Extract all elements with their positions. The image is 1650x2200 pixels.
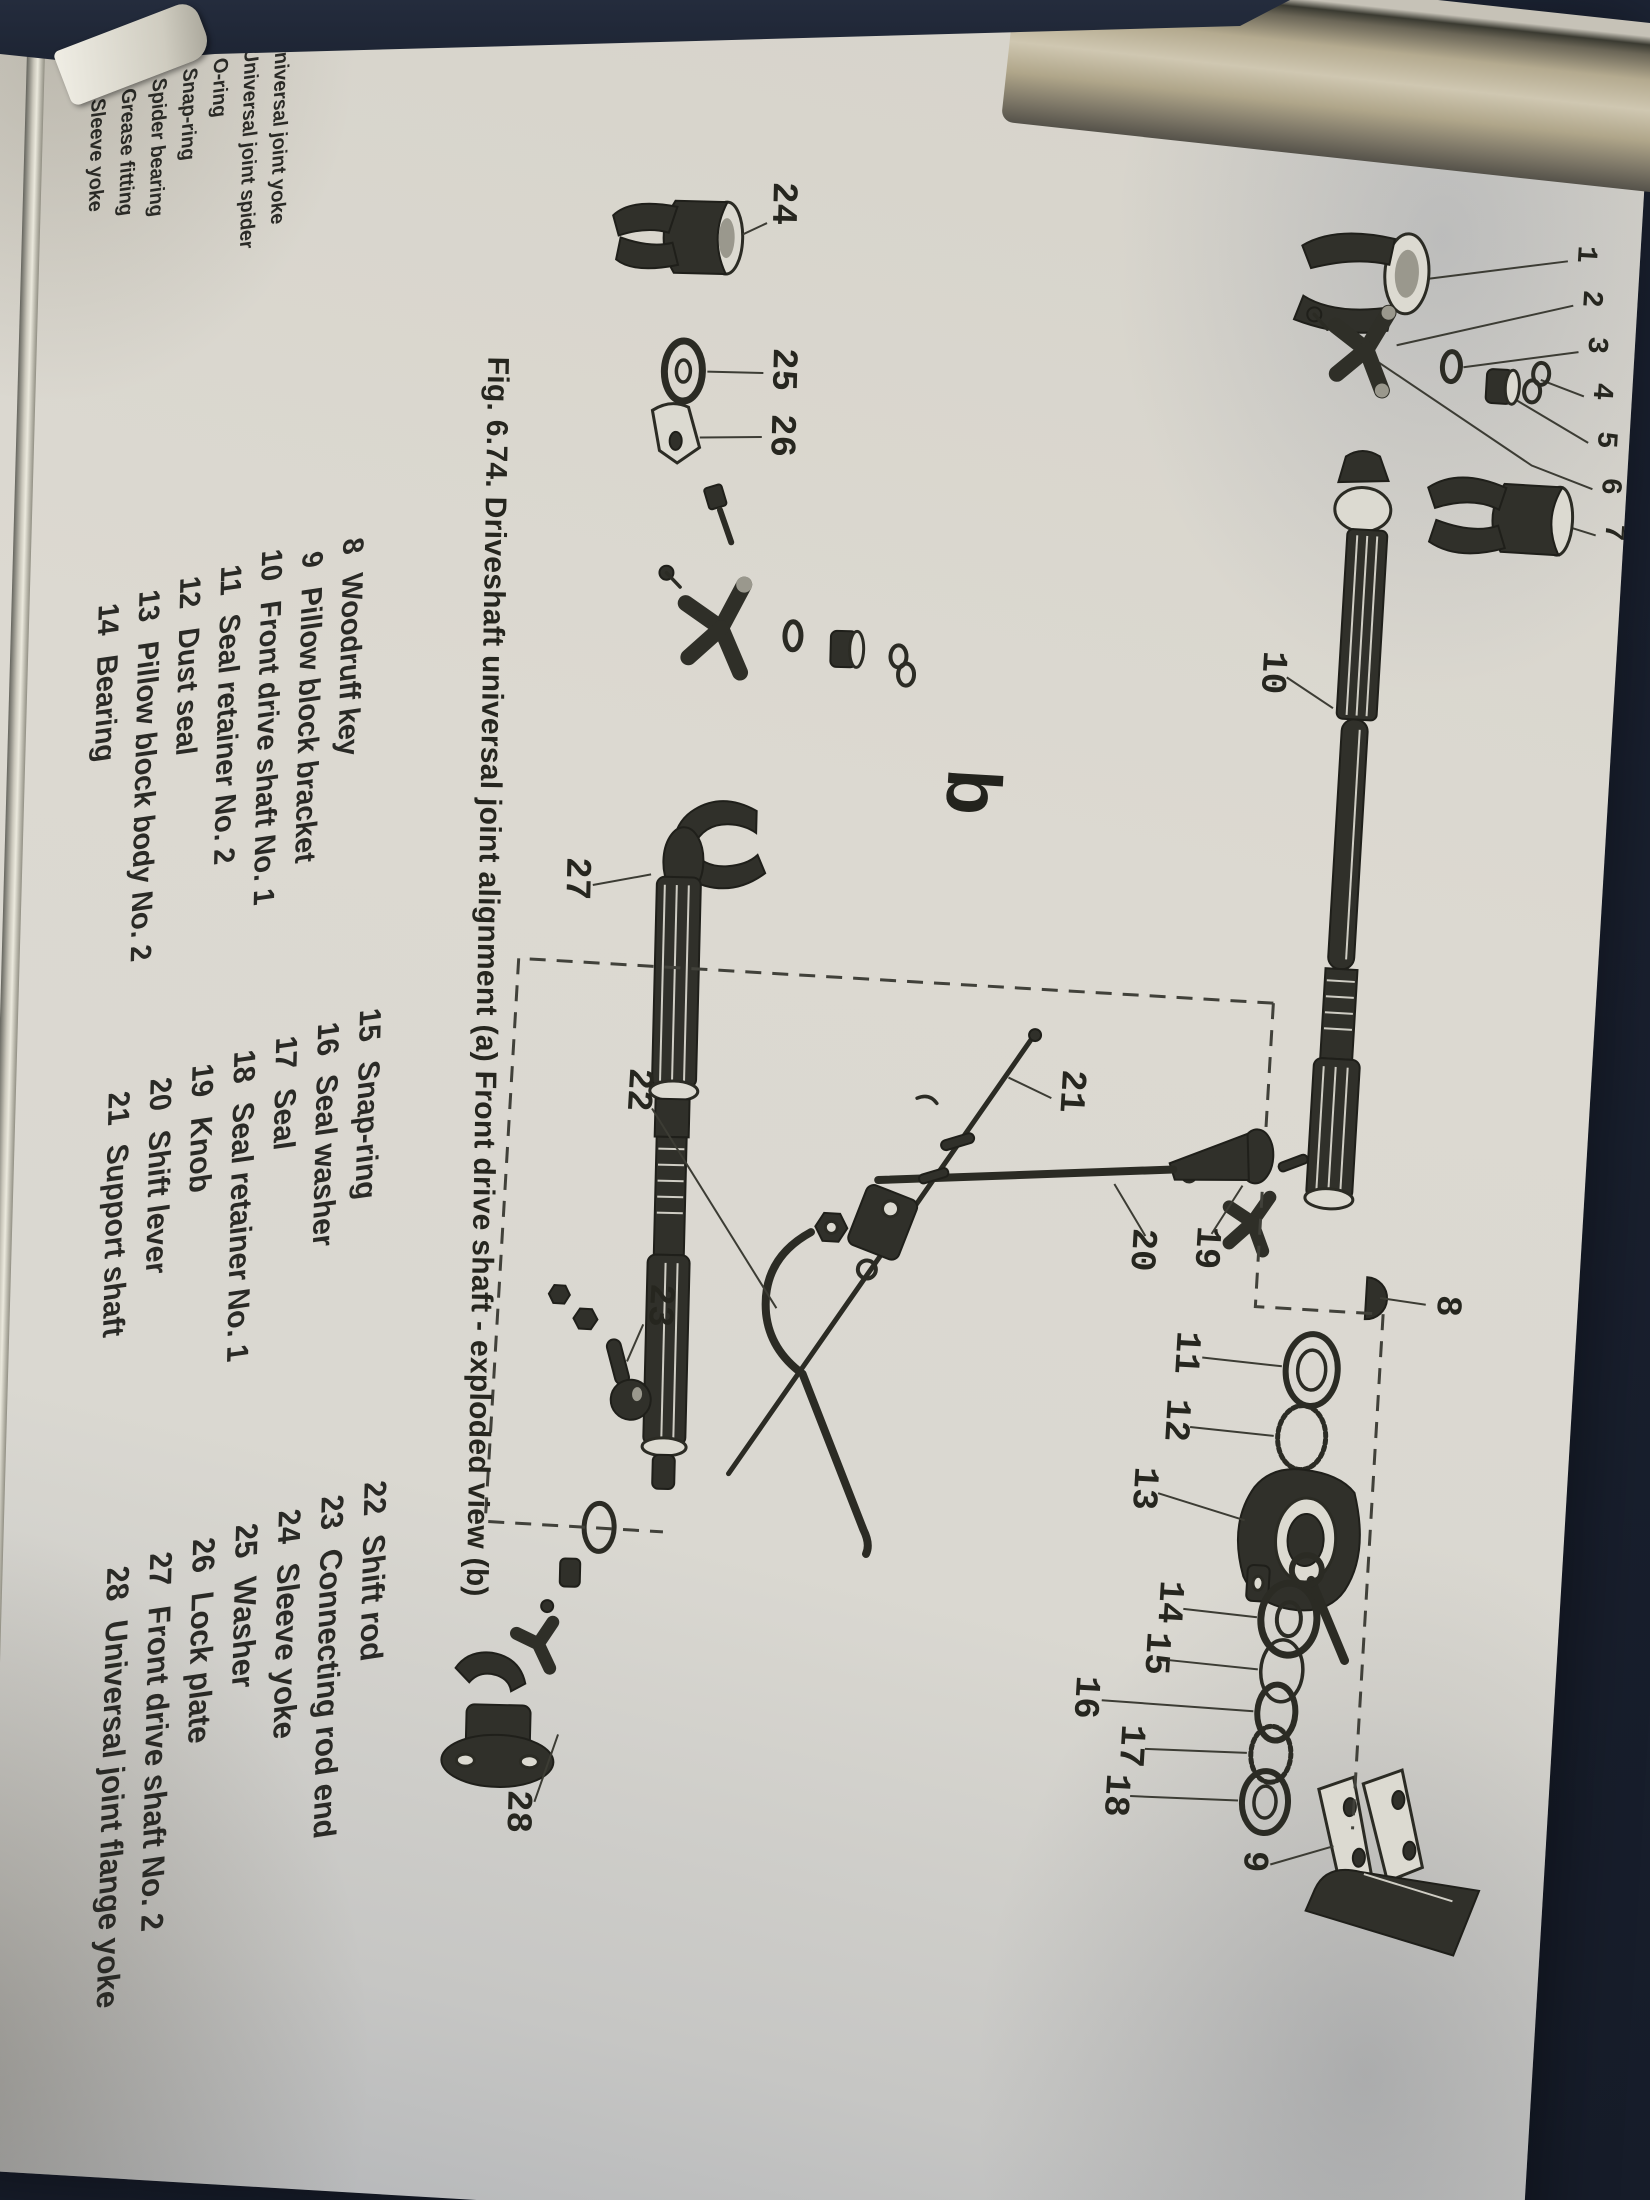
part-label: Snap-ring xyxy=(344,1034,390,1206)
part-label: Bearing xyxy=(84,628,128,768)
callout-19: 19 xyxy=(1185,1225,1228,1271)
spider-27-drawing xyxy=(657,566,753,673)
callout-25: 25 xyxy=(762,347,804,391)
callout-9: 9 xyxy=(1233,1850,1275,1874)
book-page: 1 2 3 4 5 6 7 xyxy=(0,0,1650,2200)
sleeve-yoke-a-drawing xyxy=(1424,475,1574,559)
callout-12: 12 xyxy=(1154,1397,1197,1443)
part-label: Pillow block bracket xyxy=(284,561,332,869)
callout-3: 3 xyxy=(1579,335,1613,354)
callout-10: 10 xyxy=(1251,650,1294,696)
callout-6: 6 xyxy=(1593,477,1627,496)
front-drive-shaft-2-drawing xyxy=(640,800,767,1491)
front-drive-shaft-1-drawing xyxy=(1293,449,1397,1210)
parts-list-item: 16Seal washer xyxy=(299,997,349,1340)
part-label: Washer xyxy=(221,1550,267,1694)
part-label: Front drive shaft No. 1 xyxy=(242,574,291,911)
part-label: Pillow block body No. 2 xyxy=(119,615,168,968)
parts-list-item: 17Seal xyxy=(258,1011,308,1354)
parts-list-item: 20Shift lever xyxy=(132,1052,182,1395)
callout-23: 23 xyxy=(638,1283,681,1329)
part-label: Seal xyxy=(262,1062,306,1157)
lever-clevis-drawing xyxy=(812,1090,977,1284)
callout-11: 11 xyxy=(1164,1330,1207,1376)
part-label: Front drive shaft No. 2 xyxy=(130,1579,181,1938)
callout-26: 26 xyxy=(760,413,802,457)
sleeve-yoke-24-drawing xyxy=(612,199,744,274)
parts-list-item: 21Support shaft xyxy=(90,1066,140,1409)
part-label: Shift lever xyxy=(135,1104,181,1281)
part-label: Sleeve yoke xyxy=(262,1536,310,1745)
snap-ring-drawing xyxy=(1523,362,1549,403)
callout-14: 14 xyxy=(1147,1579,1190,1625)
part-label: Seal washer xyxy=(302,1048,348,1253)
callout-27: 27 xyxy=(555,856,597,900)
part-label: Shift rod xyxy=(349,1508,395,1668)
spider-bearing-drawing xyxy=(1485,369,1520,405)
callout-20: 20 xyxy=(1120,1227,1163,1273)
o-ring-27-drawing xyxy=(785,622,802,650)
snap-rings-27-drawing xyxy=(890,645,915,686)
callout-2: 2 xyxy=(1574,289,1608,308)
callout-22: 22 xyxy=(617,1067,660,1113)
callout-13: 13 xyxy=(1122,1466,1165,1512)
diagram-b-shaft10-chain: 8 xyxy=(1051,438,1564,1957)
callout-24: 24 xyxy=(762,181,804,225)
callout-28: 28 xyxy=(497,1789,539,1833)
part-label: Woodruff key xyxy=(327,547,373,762)
pillow-block-bracket-drawing xyxy=(1303,1765,1485,1957)
callout-1: 1 xyxy=(1569,245,1603,264)
part-label: Seal retainer No. 2 xyxy=(203,588,250,871)
bearing-cup-27-drawing xyxy=(830,631,864,668)
callout-8: 8 xyxy=(1426,1294,1468,1318)
part-label: Lock plate xyxy=(177,1565,224,1750)
parts-list-item: 15Snap-ring xyxy=(341,983,391,1326)
callout-21: 21 xyxy=(1050,1069,1093,1115)
part-label: Knob xyxy=(178,1090,222,1199)
part-label: Universal joint spider xyxy=(231,23,267,254)
callout-4: 4 xyxy=(1585,382,1619,401)
callout-17: 17 xyxy=(1109,1723,1152,1769)
sub-figure-label-b: b xyxy=(929,766,1017,817)
part-label: Dust seal xyxy=(165,601,209,762)
washer-drawing xyxy=(664,341,703,402)
part-label: Seal retainer No. 1 xyxy=(216,1076,265,1368)
callout-16: 16 xyxy=(1064,1674,1107,1720)
callout-7: 7 xyxy=(1596,523,1630,542)
shift-lever-drawing xyxy=(878,1107,1275,1203)
bolt-drawing xyxy=(702,483,732,542)
lock-plate-drawing xyxy=(651,403,700,463)
photographed-manual-page: 1 2 3 4 5 6 7 xyxy=(0,0,1650,2200)
o-ring-drawing xyxy=(1442,351,1462,382)
callout-15: 15 xyxy=(1134,1631,1177,1677)
callout-5: 5 xyxy=(1589,430,1623,449)
part-label: Support shaft xyxy=(92,1117,139,1343)
part-label: Connecting rod end xyxy=(302,1522,352,1845)
parts-list-item: 18Seal retainer No. 1 xyxy=(216,1024,266,1367)
